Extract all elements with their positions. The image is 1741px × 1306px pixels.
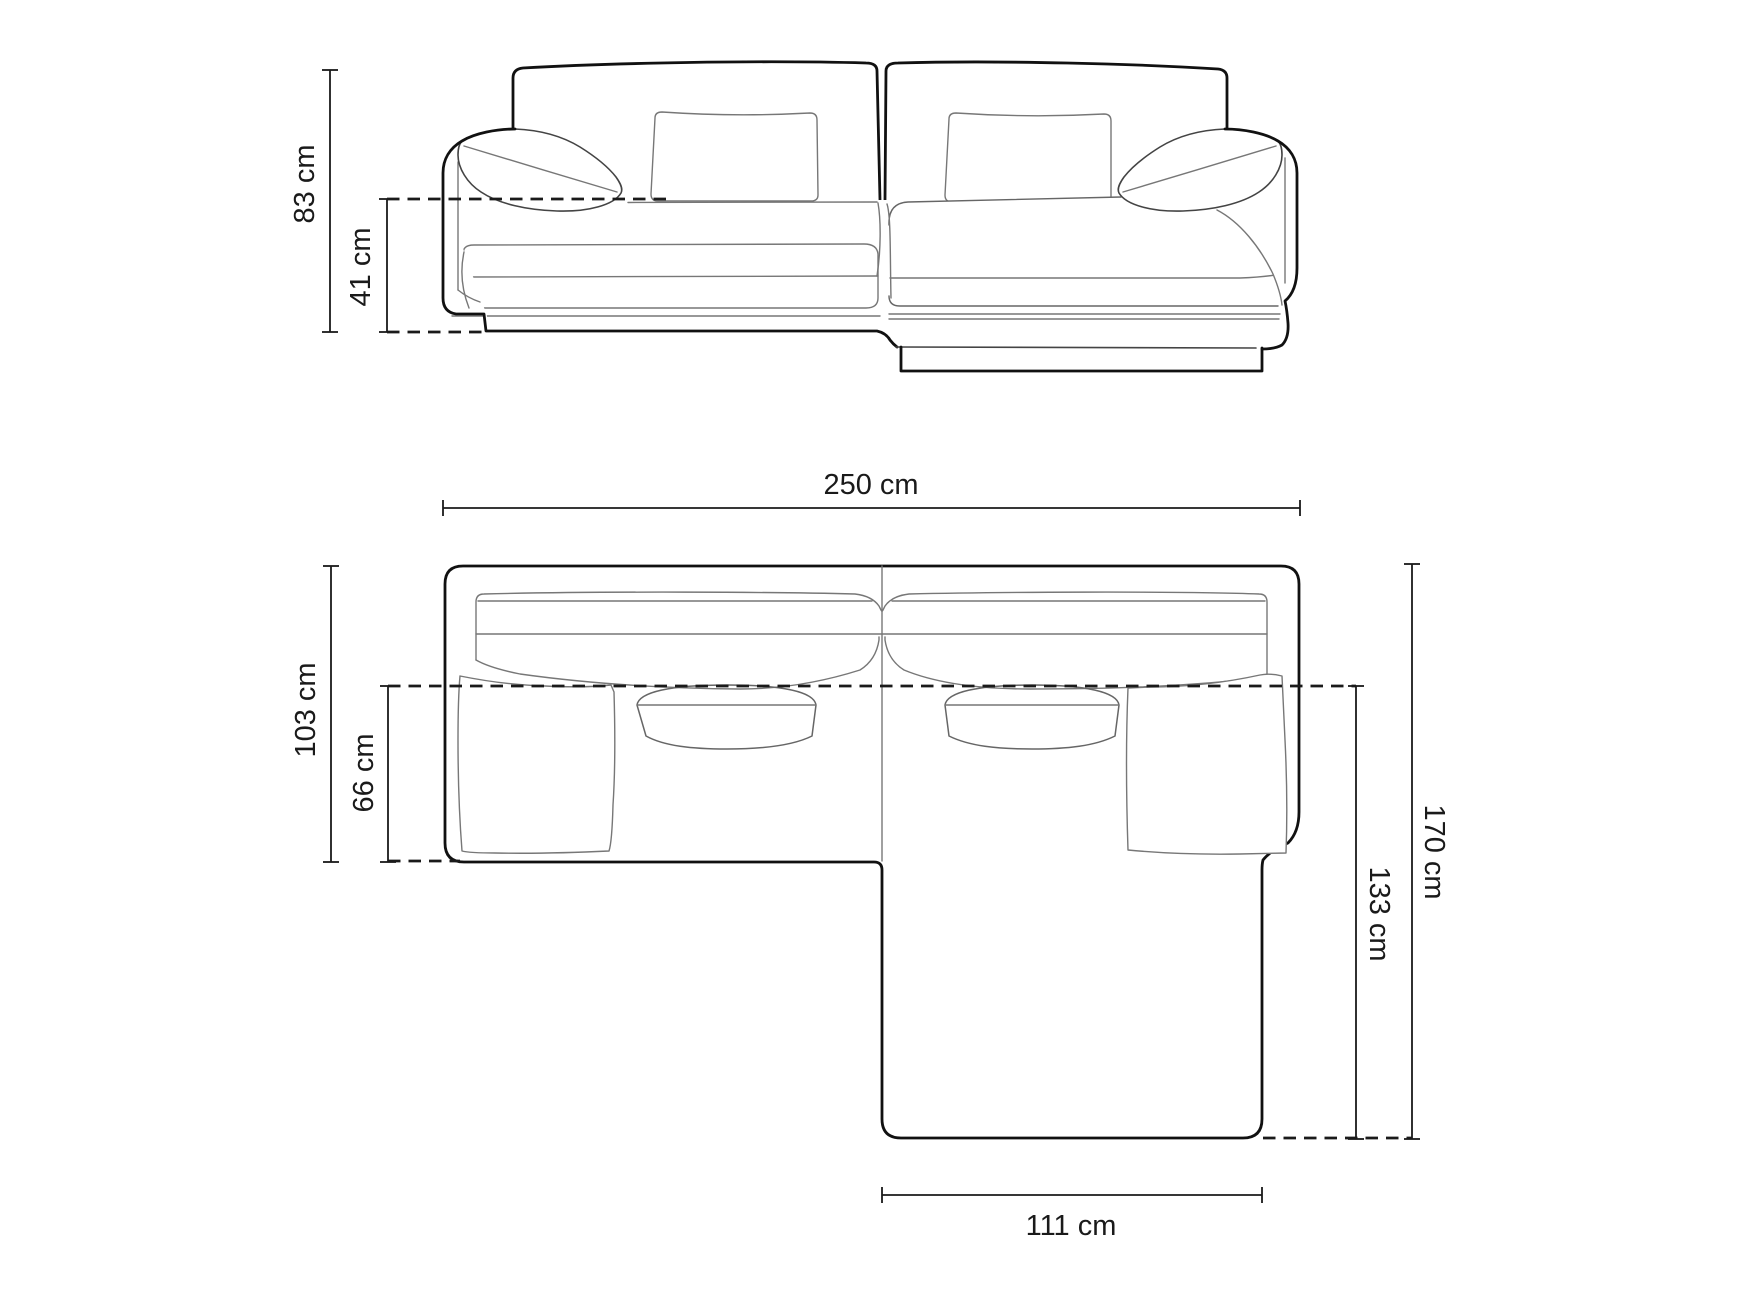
svg-text:103 cm: 103 cm <box>290 662 322 757</box>
svg-text:66 cm: 66 cm <box>348 734 380 813</box>
svg-text:250 cm: 250 cm <box>823 469 918 501</box>
svg-text:133 cm: 133 cm <box>1363 866 1395 961</box>
svg-text:111 cm: 111 cm <box>1026 1210 1117 1242</box>
svg-text:170 cm: 170 cm <box>1418 804 1450 899</box>
svg-text:83 cm: 83 cm <box>289 145 321 224</box>
svg-text:41 cm: 41 cm <box>345 228 377 307</box>
